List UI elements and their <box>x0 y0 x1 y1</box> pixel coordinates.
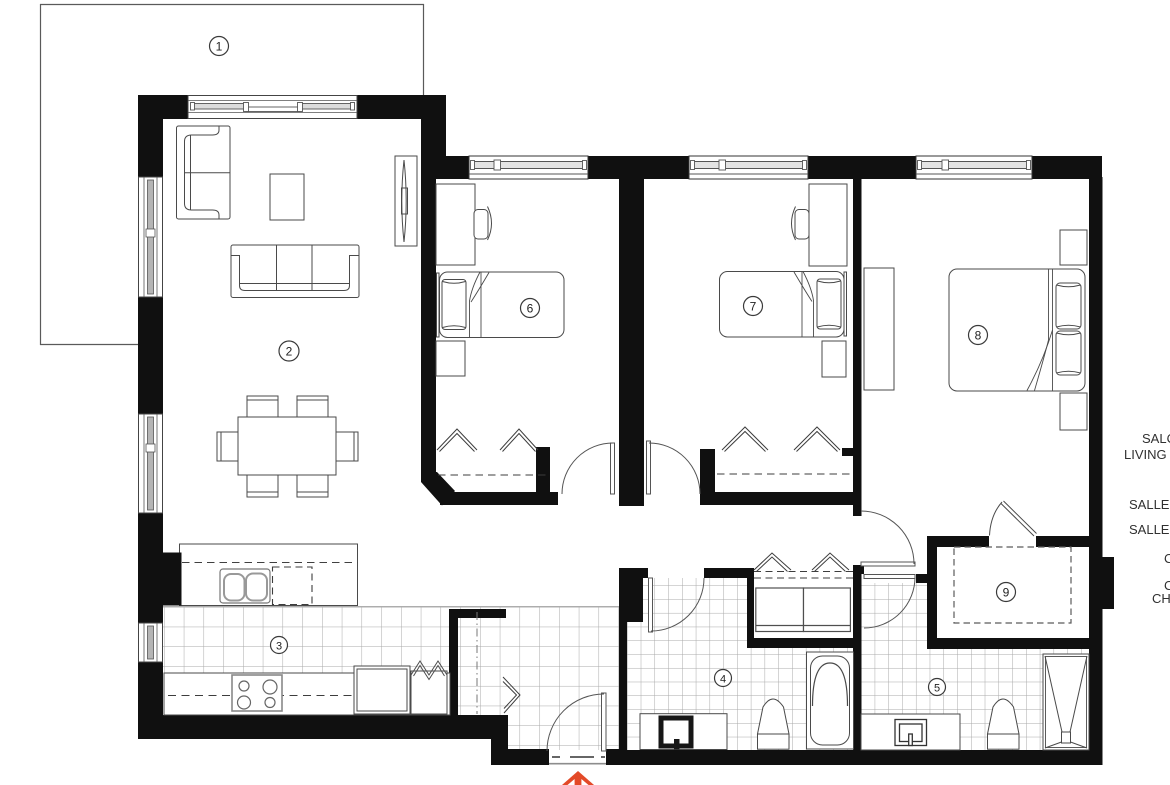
svg-text:4: 4 <box>720 674 726 686</box>
svg-text:9: 9 <box>1003 586 1010 600</box>
svg-text:CHAMBRE: CHAMBRE <box>1152 591 1170 606</box>
svg-text:3: 3 <box>276 641 282 653</box>
svg-text:CUISINE: CUISINE <box>1164 551 1170 566</box>
svg-text:1: 1 <box>216 40 223 54</box>
svg-text:SALON: SALON <box>1142 431 1170 446</box>
svg-text:SALLE DE BAIN: SALLE DE BAIN <box>1129 497 1170 512</box>
svg-text:7: 7 <box>750 300 757 314</box>
svg-text:6: 6 <box>527 302 534 316</box>
svg-text:2: 2 <box>286 345 293 359</box>
svg-text:SALLE D'EAU: SALLE D'EAU <box>1129 522 1170 537</box>
svg-text:8: 8 <box>975 329 982 343</box>
svg-text:LIVING ROOM: LIVING ROOM <box>1124 447 1170 462</box>
svg-text:5: 5 <box>934 683 940 695</box>
